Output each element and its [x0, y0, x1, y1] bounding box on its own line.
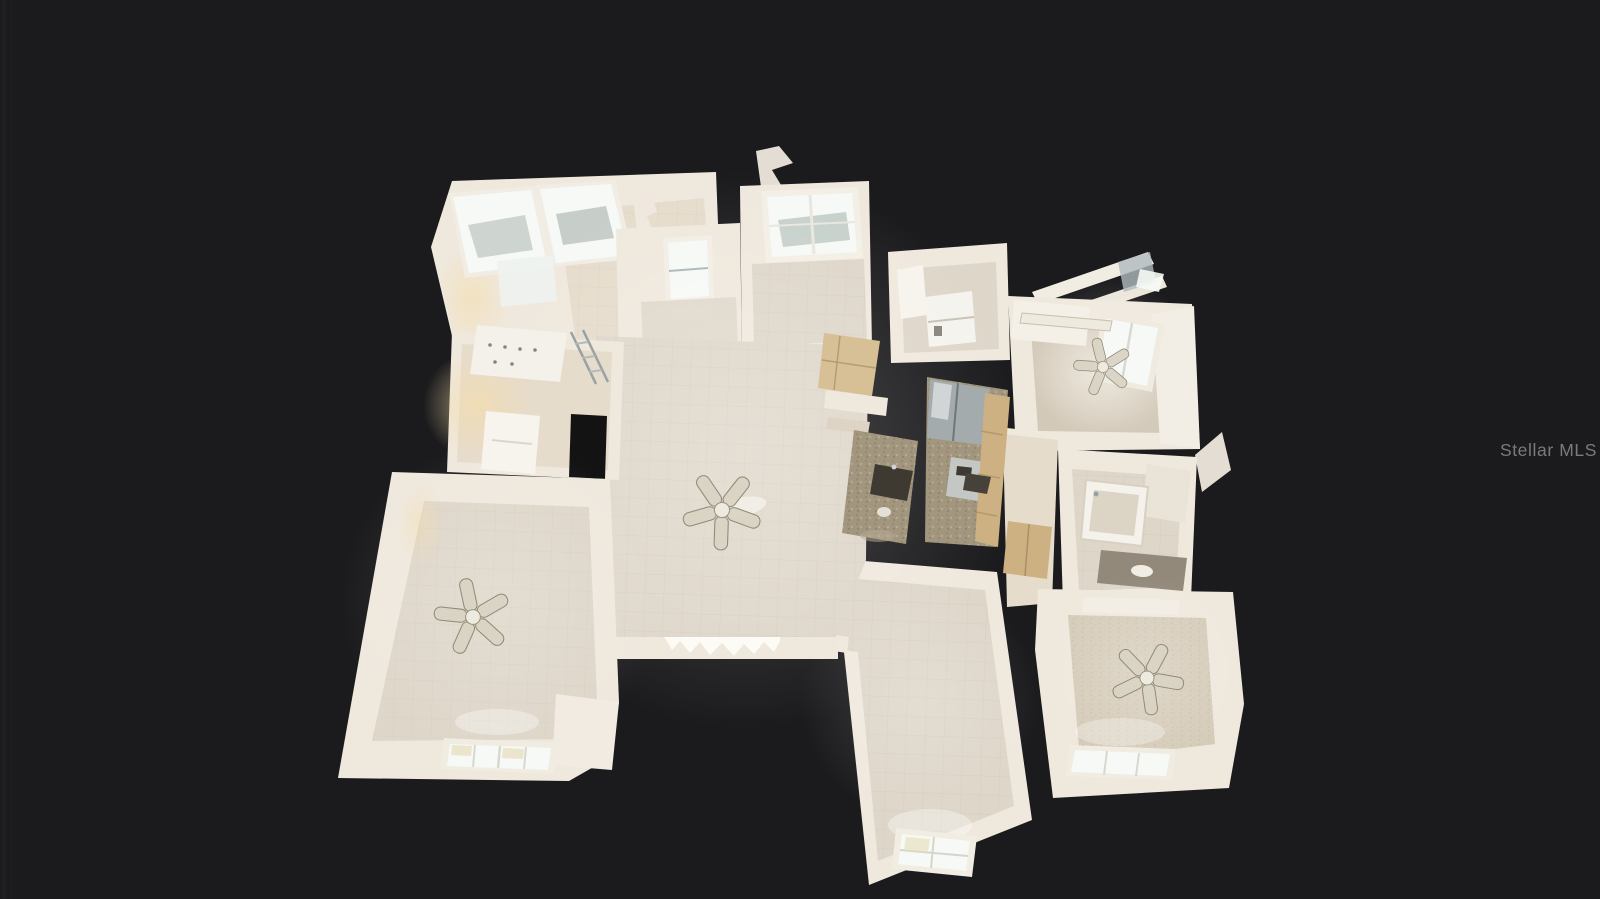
dollhouse-3d-view[interactable]: Stellar MLS [0, 0, 1600, 899]
edge-band [2, 0, 6, 899]
shower-tile [1142, 464, 1191, 523]
shelf-peg [493, 360, 497, 364]
dresser [1082, 597, 1180, 615]
island-base-shadow [860, 530, 896, 542]
shelf-peg [510, 362, 514, 366]
watermark: Stellar MLS [1500, 440, 1597, 460]
bathtub-basin [1089, 490, 1139, 536]
shelf-peg [533, 348, 537, 352]
shelf-peg [488, 343, 492, 347]
room-bedroom-3 [1035, 575, 1244, 798]
viewer-stage: Stellar MLS [0, 0, 1600, 899]
corner-wedge [552, 694, 619, 770]
island-faucet [892, 465, 897, 470]
window-light-spill [1075, 718, 1165, 746]
shelf-peg [503, 345, 507, 349]
island-dish [877, 507, 891, 517]
room-bedroom-4 [338, 440, 660, 781]
edge-band [10, 0, 12, 899]
closet-shelf [470, 325, 567, 382]
window-glass [1071, 750, 1170, 776]
shelf-peg [518, 347, 522, 351]
window-light-spill [455, 709, 539, 735]
window-sparkle [451, 745, 472, 756]
window-sparkle [904, 837, 930, 852]
window-sparkle [502, 748, 524, 759]
tub-faucet [1094, 492, 1099, 497]
